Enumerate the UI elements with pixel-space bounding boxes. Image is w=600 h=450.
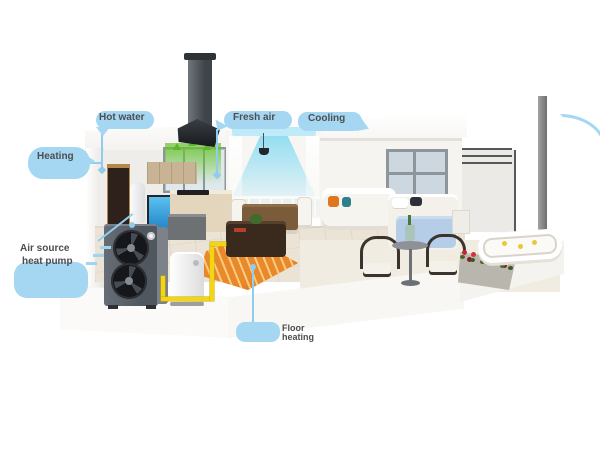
nightstand xyxy=(452,210,470,234)
callout-hot-water-label: Hot water xyxy=(99,112,145,123)
callout-heating-label: Heating xyxy=(37,151,74,162)
refrigerant-pipe xyxy=(161,297,213,301)
kitchen-island xyxy=(168,214,206,240)
callout-floor-heating xyxy=(236,322,280,342)
connector-step xyxy=(93,254,104,257)
tank-logo xyxy=(193,260,199,266)
flower-leaves xyxy=(460,255,465,259)
kitchen-upper-cabinets xyxy=(147,162,197,184)
patio-table-stem xyxy=(409,249,412,281)
dining-chair xyxy=(297,197,312,226)
callout-cooling-label: Cooling xyxy=(308,113,345,124)
water-pipe-branch xyxy=(210,242,226,246)
connector-step xyxy=(100,246,111,249)
pointer-dot xyxy=(129,222,135,228)
bedroom-window xyxy=(386,149,448,199)
heat-pump-house-illustration: Hot water Fresh air Cooling Heating Air … xyxy=(0,0,600,450)
tank-base xyxy=(170,302,204,306)
water-purifier-unit xyxy=(130,183,145,223)
bed-pillow-dark xyxy=(410,197,422,206)
fresh-air-arrow xyxy=(173,143,181,150)
callout-tail xyxy=(246,315,258,329)
fan-bottom xyxy=(111,263,147,299)
patio-chair-cushion xyxy=(429,261,457,272)
bonsai-plant xyxy=(250,214,262,224)
callout-heat-pump-line1: Air source xyxy=(20,244,69,253)
rubber-duck xyxy=(502,241,507,246)
rubber-duck xyxy=(518,244,523,249)
coffee-table xyxy=(226,221,286,257)
unit-foot xyxy=(108,305,118,309)
wall-louvers xyxy=(462,148,512,168)
sofa-pillow-orange xyxy=(328,196,339,207)
curtain-right xyxy=(306,136,319,202)
callout-tail xyxy=(96,127,110,143)
sofa xyxy=(322,188,396,230)
sofa-pillow-teal xyxy=(342,197,351,207)
callout-heat-pump xyxy=(14,262,88,298)
pointer-arc-right xyxy=(560,114,600,148)
pointer-dot xyxy=(250,264,256,270)
unit-foot xyxy=(146,305,156,309)
connector-step xyxy=(86,262,97,265)
duct-cap xyxy=(184,53,216,60)
rubber-duck xyxy=(532,240,537,245)
pendant-lamp xyxy=(259,148,269,155)
patio-table-base xyxy=(401,280,420,286)
callout-heat-pump-line2: heat pump xyxy=(22,257,73,266)
flower-vase xyxy=(405,224,415,242)
callout-fresh-air-label: Fresh air xyxy=(233,112,275,123)
patio-chair-cushion xyxy=(363,263,391,274)
brand-logo-badge xyxy=(147,232,155,240)
cooktop xyxy=(177,190,209,195)
callout-tail xyxy=(84,154,102,168)
table-book xyxy=(234,228,246,232)
water-pipe-riser xyxy=(210,244,214,301)
downspout xyxy=(538,96,547,232)
fan-top xyxy=(113,230,149,266)
bed-pillow-white xyxy=(392,198,408,208)
callout-floor-heating-label: Floor heating xyxy=(282,324,322,342)
